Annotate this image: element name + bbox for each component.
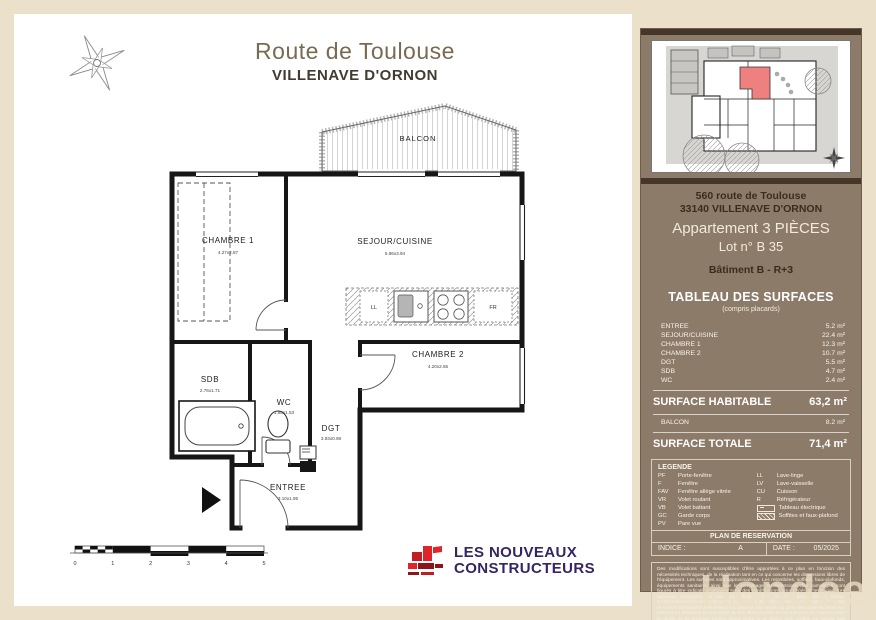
info-sidebar: 560 route de Toulouse 33140 VILLENAVE D'… — [640, 28, 862, 592]
surface-row: CHAMBRE 210.7 m² — [661, 349, 845, 358]
scale-tick: 5 — [262, 561, 265, 567]
page-subtitle: VILLENAVE D'ORNON — [190, 67, 520, 84]
surface-row: ENTREE5.2 m² — [661, 322, 845, 331]
room-label-chambre2: CHAMBRE 2 — [412, 350, 464, 359]
legend-box: LEGENDE PFPorte-fenêtre FFenêtre FAVFenê… — [651, 459, 851, 531]
date-label: DATE : — [767, 543, 803, 555]
compass-rose-icon — [57, 23, 137, 103]
divider — [653, 414, 849, 415]
surface-row: SEJOUR/CUISINE22.4 m² — [661, 331, 845, 340]
scale-tick: 3 — [187, 561, 190, 567]
legend-right-column: LLLave-linge LVLave-vaisselle CUCuisson … — [757, 472, 844, 528]
surfaces-subtitle: (compris placards) — [641, 305, 861, 314]
balcon-row: BALCON 8.2 m² — [661, 418, 845, 427]
hob-icon — [434, 291, 468, 322]
room-dim-sdb: 2.76x1.71 — [200, 388, 221, 393]
room-dim-wc: 1.88x1.53 — [274, 410, 295, 415]
room-label-chambre1: CHAMBRE 1 — [202, 236, 254, 245]
surface-totale-row: SURFACE TOTALE 71,4 m² — [653, 437, 847, 451]
room-label-sdb: SDB — [201, 375, 219, 384]
toilet-icon — [266, 411, 290, 453]
lot-number: Lot n° B 35 — [641, 238, 861, 255]
surface-row: CHAMBRE 112.3 m² — [661, 340, 845, 349]
scale-tick: 2 — [149, 561, 152, 567]
reservation-box: PLAN DE RESERVATION INDICE : A DATE : 05… — [651, 531, 851, 556]
scale-tick: 1 — [111, 561, 114, 567]
surface-row: DGT5.5 m² — [661, 358, 845, 367]
balcony-label: BALCON — [400, 134, 437, 143]
room-dim-entree: 3.10x1.95 — [278, 496, 299, 501]
indice-value: A — [715, 543, 766, 555]
sidebar-top-bar — [641, 29, 861, 35]
room-dim-chambre1: 4.27x2.87 — [218, 250, 239, 255]
title-block: Route de Toulouse VILLENAVE D'ORNON — [190, 38, 520, 84]
address-line2: 33140 VILLENAVE D'ORNON — [641, 203, 861, 216]
thumbnail-bush — [805, 68, 831, 94]
electrical-panel-icon — [300, 446, 316, 472]
surface-row: SDB4.7 m² — [661, 367, 845, 376]
surface-row: WC2.4 m² — [661, 376, 845, 385]
logo-line2: CONSTRUCTEURS — [454, 561, 595, 577]
address-line1: 560 route de Toulouse — [641, 190, 861, 203]
floor-plan-drawing: BALCON — [0, 0, 640, 620]
floor-plan-page: BALCON — [0, 0, 876, 620]
scale-tick: 0 — [73, 561, 76, 567]
disclaimer-text: Des modifications sont susceptibles d'êt… — [651, 562, 851, 620]
indice-label: INDICE : — [652, 543, 715, 555]
surfaces-table: ENTREE5.2 m² SEJOUR/CUISINE22.4 m² CHAMB… — [661, 322, 845, 385]
legend-left-column: PFPorte-fenêtre FFenêtre FAVFenêtre allè… — [658, 472, 757, 528]
surfaces-title: TABLEAU DES SURFACES — [641, 290, 861, 305]
scale-tick: 4 — [225, 561, 228, 567]
sink-icon — [394, 291, 428, 322]
legend-title: LEGENDE — [658, 463, 844, 472]
divider — [653, 432, 849, 433]
tableau-electrique-icon — [757, 505, 775, 512]
windows — [196, 169, 527, 404]
exterior-walls — [172, 174, 522, 528]
entrance-arrow-icon — [202, 487, 221, 513]
apartment-type: Appartement 3 PIÈCES — [641, 219, 861, 238]
site-plan-thumbnail — [651, 40, 851, 173]
scale-bar — [70, 546, 268, 556]
soffites-icon — [757, 513, 775, 520]
bathtub-icon — [179, 401, 255, 451]
room-label-sejour: SEJOUR/CUISINE — [357, 237, 433, 246]
logo-blocks-icon — [406, 543, 448, 579]
reservation-title: PLAN DE RESERVATION — [652, 531, 850, 543]
sidebar-separator-bar — [641, 178, 861, 184]
developer-logo: LES NOUVEAUX CONSTRUCTEURS — [406, 543, 595, 579]
surface-habitable-row: SURFACE HABITABLE 63,2 m² — [653, 395, 847, 409]
date-value: 05/2025 — [802, 543, 850, 555]
room-label-entree: ENTREE — [270, 483, 306, 492]
room-dim-sejour: 5.96x3.94 — [385, 251, 406, 256]
building-info: Bâtiment B - R+3 — [641, 264, 861, 277]
room-dim-dgt: 3.93x0.98 — [321, 436, 342, 441]
room-dim-chambre2: 4.20x2.55 — [428, 364, 449, 369]
fridge-label: FR — [489, 305, 496, 311]
page-title: Route de Toulouse — [190, 38, 520, 65]
divider — [653, 390, 849, 391]
washer-label: LL — [371, 305, 377, 311]
logo-line1: LES NOUVEAUX — [454, 545, 595, 561]
room-label-dgt: DGT — [322, 424, 341, 433]
room-label-wc: WC — [277, 398, 292, 407]
